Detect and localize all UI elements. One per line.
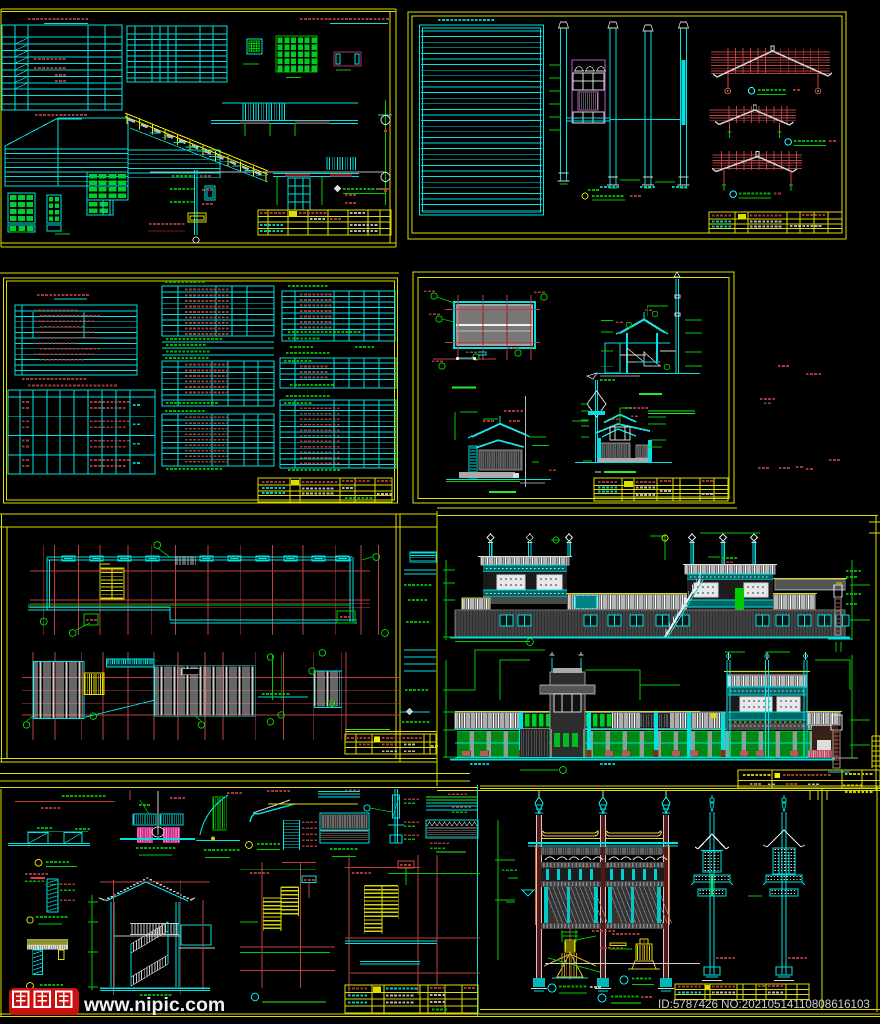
svg-text:ID:5787426 NO:2021051411080861: ID:5787426 NO:20210514110808616103 [658,998,870,1011]
svg-text:www.nipic.com: www.nipic.com [83,994,225,1016]
